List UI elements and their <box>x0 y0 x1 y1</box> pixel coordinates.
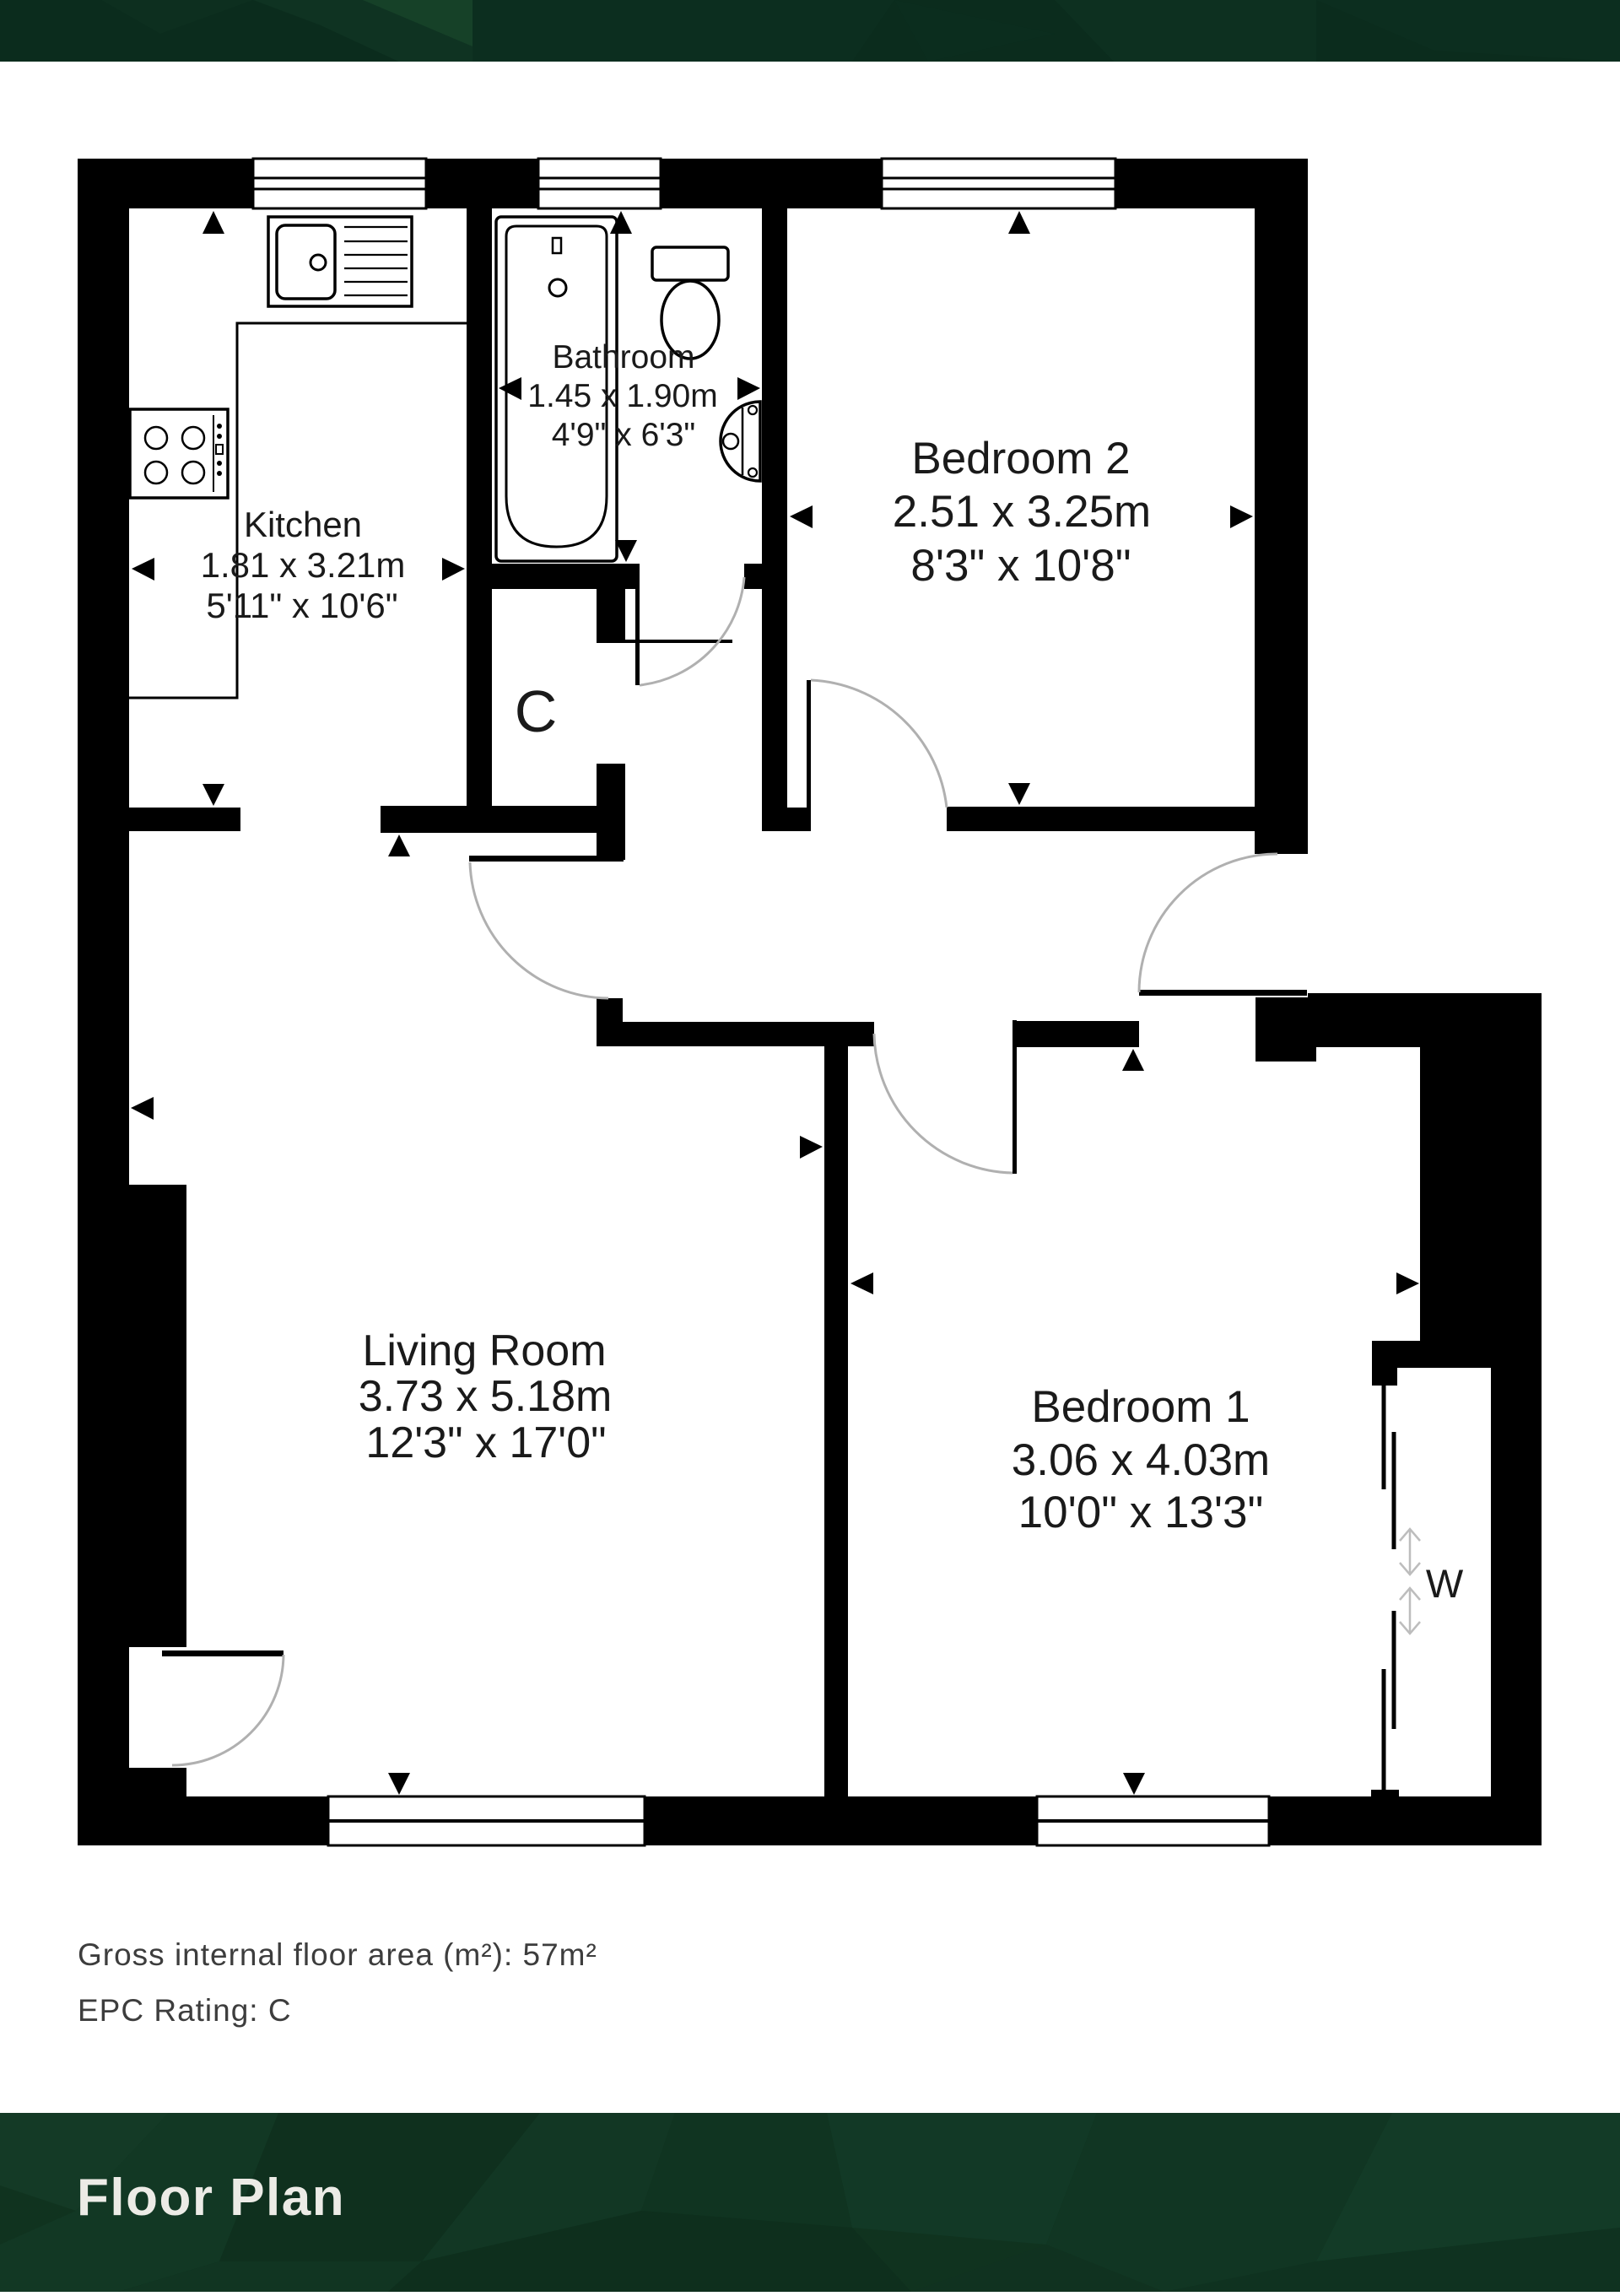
svg-text:3.06 x 4.03m: 3.06 x 4.03m <box>1012 1435 1270 1485</box>
svg-text:Kitchen: Kitchen <box>244 505 362 544</box>
svg-text:3.73 x 5.18m: 3.73 x 5.18m <box>359 1372 613 1421</box>
svg-text:1.45 x 1.90m: 1.45 x 1.90m <box>527 378 717 414</box>
svg-text:10'0" x 13'3": 10'0" x 13'3" <box>1018 1488 1264 1537</box>
svg-text:Living Room: Living Room <box>362 1326 606 1375</box>
svg-text:8'3" x 10'8": 8'3" x 10'8" <box>910 541 1131 591</box>
svg-text:1.81 x 3.21m: 1.81 x 3.21m <box>201 545 406 585</box>
svg-text:4'9" x 6'3": 4'9" x 6'3" <box>552 417 696 453</box>
svg-text:12'3" x 17'0": 12'3" x 17'0" <box>365 1418 606 1467</box>
svg-text:EPC Rating: C: EPC Rating: C <box>78 1993 292 2028</box>
svg-text:Bathroom: Bathroom <box>552 339 694 375</box>
svg-text:Gross internal floor area (m²): Gross internal floor area (m²): 57m² <box>78 1937 597 1972</box>
svg-text:Bedroom 1: Bedroom 1 <box>1031 1382 1250 1432</box>
svg-text:2.51 x 3.25m: 2.51 x 3.25m <box>893 487 1151 537</box>
svg-text:Floor Plan: Floor Plan <box>77 2169 345 2227</box>
svg-text:5'11" x 10'6": 5'11" x 10'6" <box>206 586 397 625</box>
svg-text:Bedroom 2: Bedroom 2 <box>911 434 1130 484</box>
svg-text:C: C <box>515 678 558 744</box>
svg-text:W: W <box>1426 1561 1464 1606</box>
